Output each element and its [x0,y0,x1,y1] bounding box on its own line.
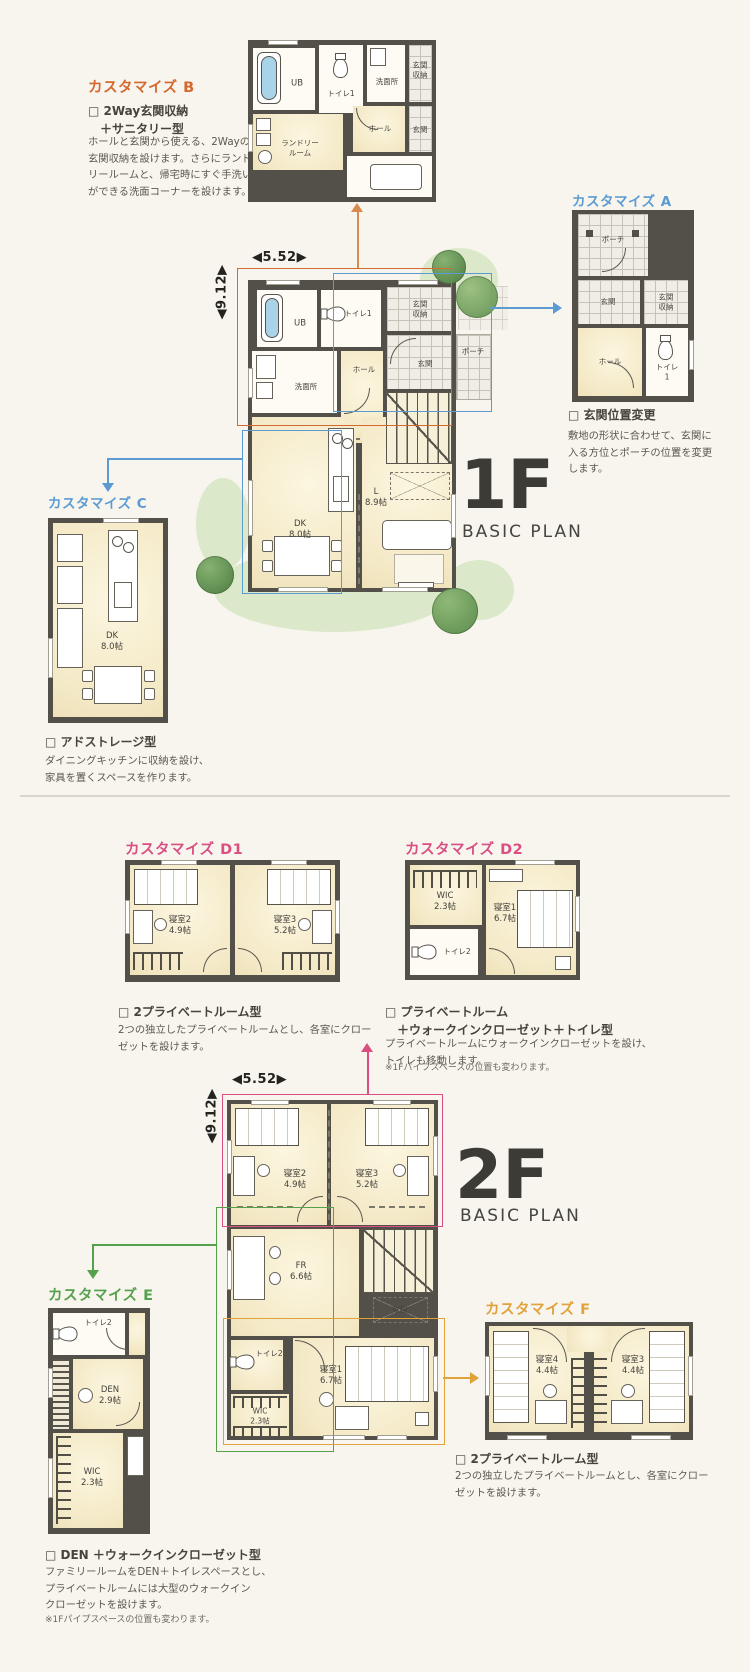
closet-hangers [282,952,332,970]
floor2-label: 2F [455,1142,549,1210]
room-label: 寝室3 5.2帖 [356,1169,378,1191]
room-label: DK 8.0帖 [289,519,311,541]
plan-customize-b: UB トイレ1 洗面所 玄関 収納 ホール 玄関 ランドリー ルーム [248,40,436,202]
toilet-icon [58,1327,78,1342]
plan-2f-main: 寝室2 4.9帖 寝室3 5.2帖 FR 6.6帖 ✳ 吹抜 トイレ2 WIC … [227,1100,438,1440]
plan-customize-d2: WIC 2.3帖 トイレ2 寝室1 6.7帖 [405,860,580,980]
window [485,1356,490,1396]
connector-c [108,458,242,460]
room-label: WIC 2.3帖 [81,1467,103,1489]
chair [298,918,311,931]
customize-d2-option: □ プライベートルーム ＋ウォークインクローゼット＋トイレ型 [385,1003,613,1039]
kitchen-sink [333,476,349,502]
sofa [382,520,452,550]
tree [456,276,498,318]
desk [535,1400,567,1424]
dimension-width-1f: ◀5.52▶ [252,250,307,265]
window [248,368,253,398]
storage-cabinet [57,534,83,562]
closet-hangers [413,870,477,888]
chair [82,670,93,682]
desk [407,1156,429,1196]
floor-plan-sheet: カスタマイズ B □ 2Way玄関収納 ＋サニタリー型 ホールと玄関から使える、… [0,0,750,1672]
floor1-sublabel: BASIC PLAN [462,522,583,542]
room-label: DEN 2.9帖 [99,1385,121,1407]
desk [133,910,153,944]
plan-customize-d1: 寝室2 4.9帖 寝室3 5.2帖 [125,860,340,982]
bush [196,478,250,570]
window [382,587,428,592]
stove-burner-icon [342,438,353,449]
plan-customize-a: ポーチ 玄関 玄関 収納 ホール トイレ1 [572,210,694,402]
window [688,1356,693,1396]
customize-c-title: カスタマイズ C [48,492,147,512]
floor2-sublabel: BASIC PLAN [460,1206,581,1226]
section-divider [20,795,730,797]
room-label: UB [291,78,303,89]
storage-cabinet [57,608,83,668]
hall-fragment [129,1313,145,1355]
window [227,1250,232,1290]
dining-table [274,536,330,576]
room-label: 玄関 [413,125,428,135]
room-porch-1f [456,334,492,400]
customize-e-option: □ DEN ＋ウォークインクローゼット型 [45,1546,261,1564]
room-label: 吹抜 [393,1305,408,1315]
window [103,518,139,523]
room-label: L 8.9帖 [365,487,387,509]
window [271,860,307,865]
arrow-c-down-icon [102,483,114,492]
window [398,280,438,285]
washbasin [256,382,273,399]
room-label: トイレ1 [327,89,354,99]
customize-b-option: □ 2Way玄関収納 ＋サニタリー型 [88,102,188,138]
customize-d2-note: ※1Fパイプスペースの位置も変わります。 [385,1060,554,1073]
chair [78,1388,93,1403]
room-label: 寝室1 6.7帖 [494,903,516,925]
chair [154,918,167,931]
room-label: 玄関 収納 [659,292,674,312]
connector-f [443,1377,471,1379]
connector-a [490,307,554,309]
toilet-icon [326,307,346,322]
customize-c-desc: ダイニングキッチンに収納を設け、 家具を置くスペースを作ります。 [45,753,209,786]
connector-e [92,1244,94,1271]
connector-d [367,1052,369,1094]
customize-d1-title: カスタマイズ D1 [125,838,243,859]
room-label: トイレ1 [344,309,371,319]
window [323,1435,365,1440]
dimension-height-1f: ◀9.12▶ [215,264,230,320]
window [227,1140,232,1174]
movable-partition [328,1110,330,1220]
window [248,480,253,536]
window [515,860,555,865]
window [125,900,130,934]
plan-customize-f: 寝室4 4.4帖 寝室3 4.4帖 [485,1322,693,1440]
chair [262,540,273,552]
closet-hangers [233,1426,287,1438]
window [266,280,300,285]
bed [235,1108,299,1146]
window [48,1458,53,1498]
room-label: 洗面所 [295,382,318,392]
room-label: 玄関 [601,297,616,307]
tree [432,250,466,284]
under-stair-storage [390,472,450,500]
toilet-icon [333,58,348,78]
window [251,1100,289,1105]
closet-hangers [133,952,183,970]
customize-b-desc: ホールと玄関から使える、2Wayの 玄関収納を設けます。さらにランド リールーム… [88,134,252,201]
chair [331,540,342,552]
plan-1f-main: UB トイレ1 玄関 収納 玄関 洗面所 ホール DK 8.0帖 L 8.9帖 [248,280,456,592]
shelf [489,869,523,882]
customize-f-title: カスタマイズ F [485,1298,591,1319]
window [507,1435,547,1440]
arrow-d-up-icon [361,1043,373,1052]
entry-alcove [567,1326,611,1352]
room-label: 寝室3 4.4帖 [622,1355,644,1377]
room-label: ホール [599,357,622,367]
customize-f-desc: 2つの独立したプライベートルームとし、各室にクロー ゼットを設けます。 [455,1468,708,1501]
washer [256,355,276,379]
shelf-louver [53,1359,69,1429]
dining-table [94,666,142,704]
desk [335,1406,369,1430]
chair [543,1384,557,1398]
washer [256,118,271,131]
window [278,587,328,592]
customize-a-option: □ 玄関位置変更 [568,406,656,424]
closet-hangers [592,1358,607,1428]
toilet-icon [658,340,673,360]
chair [82,688,93,700]
chair [621,1384,635,1398]
window [377,1435,407,1440]
sofa [370,164,422,190]
customize-d2-title: カスタマイズ D2 [405,838,523,859]
tree [196,556,234,594]
customize-d1-option: □ 2プライベートルーム型 [118,1003,262,1021]
bed [267,869,331,905]
room-label: ホール [369,124,392,134]
window [575,896,580,932]
side-table [555,956,571,970]
storage-cabinet [57,566,83,604]
stove-burner-icon [123,542,134,553]
room-label: トイレ2 [443,947,470,957]
customize-c-option: □ アドストレージ型 [45,733,156,751]
desk [127,1436,144,1476]
chair [257,1164,270,1177]
chair [331,560,342,572]
wall-post [586,230,593,237]
dimension-height-2f: ◀9.12▶ [205,1088,220,1144]
stairs [363,1229,434,1293]
customize-d1-desc: 2つの独立したプライベートルームとし、各室にクロー ゼットを設けます。 [118,1022,371,1055]
room-label: ランドリー ルーム [281,138,319,158]
plan-customize-c: DK 8.0帖 [48,518,168,723]
customize-a-title: カスタマイズ A [572,190,672,210]
washbasin [370,48,386,66]
window [433,1136,438,1176]
chair [319,1392,334,1407]
room-label: FR 6.6帖 [290,1261,312,1283]
bed [517,890,573,948]
desk [233,1156,255,1196]
bed [365,1108,429,1146]
desk [611,1400,643,1424]
room-label: 寝室1 6.7帖 [320,1365,342,1387]
window [48,1368,53,1398]
chair [269,1272,281,1285]
toilet-icon [417,945,437,960]
window [248,124,253,152]
chair [393,1164,406,1177]
room-label: WIC 2.3帖 [434,891,456,913]
room-label: 玄関 [418,359,433,369]
washer [256,133,271,146]
arrow-a-right-icon [553,302,562,314]
toilet-icon [235,1355,255,1370]
dimension-width-2f: ◀5.52▶ [232,1072,287,1087]
room-label: トイレ2 [255,1349,282,1359]
bed [345,1346,429,1402]
bathtub [257,52,281,104]
room-label: UB [294,318,306,329]
arrow-b-up-icon [351,203,363,212]
connector-b [357,212,359,268]
room-label: 寝室4 4.4帖 [536,1355,558,1377]
side-table [415,1412,429,1426]
customize-e-desc: ファミリールームをDEN＋トイレスペースとし、 プライベートルームには大型のウォ… [45,1564,272,1614]
customize-f-option: □ 2プライベートルーム型 [455,1450,599,1468]
chair [144,670,155,682]
closet-partition [369,1206,425,1208]
window [268,40,298,45]
closet-partition [237,1206,293,1208]
chair [262,560,273,572]
customize-b-title: カスタマイズ B [88,76,195,97]
arrow-f-right-icon [470,1372,479,1384]
chair [269,1246,281,1259]
room-label: 寝室2 4.9帖 [169,915,191,937]
room-label: 玄関 収納 [413,299,428,319]
room-label: ポーチ [602,235,625,245]
room-label: 寝室3 5.2帖 [274,915,296,937]
window [689,340,694,370]
desk [312,910,332,944]
window [48,638,53,678]
connector-e [93,1244,216,1246]
window [433,1356,438,1392]
rug [394,554,444,584]
window [631,1435,671,1440]
customize-a-desc: 敷地の形状に合わせて、玄関に 入る方位とポーチの位置を変更 します。 [568,428,712,478]
bed [493,1331,529,1423]
window [335,900,340,934]
floor1-label: 1F [460,452,554,520]
room-label: 寝室2 4.9帖 [284,1169,306,1191]
customize-e-note: ※1Fパイプスペースの位置も変わります。 [45,1612,214,1625]
closet-hangers [571,1358,586,1428]
work-table [233,1236,265,1300]
window [451,494,456,538]
open-partition [358,494,360,584]
room-label: トイレ2 [84,1318,111,1328]
room-label: DK 8.0帖 [101,631,123,653]
stove-burner-icon [112,536,123,547]
closet-hangers [56,1436,71,1524]
wall-post [632,230,639,237]
stairs [386,392,452,464]
laundry-sink [258,150,272,164]
room-label: トイレ1 [654,362,681,382]
bed [649,1331,685,1423]
bed [134,869,198,905]
chair [144,688,155,700]
tree [432,588,478,634]
window [373,1100,411,1105]
arrow-e-down-icon [87,1270,99,1279]
room-label: WIC 2.3帖 [250,1406,269,1426]
customize-e-title: カスタマイズ E [48,1284,154,1305]
room-label: ホール [353,365,376,375]
room-label: ポーチ [462,347,485,357]
connector-c [107,458,109,484]
room-label: 洗面所 [376,77,399,87]
bathtub [261,294,283,342]
kitchen-sink [114,582,132,608]
room-label: 玄関 収納 [413,60,428,80]
window [161,860,197,865]
plan-customize-e: トイレ2 DEN 2.9帖 WIC 2.3帖 [48,1308,150,1534]
